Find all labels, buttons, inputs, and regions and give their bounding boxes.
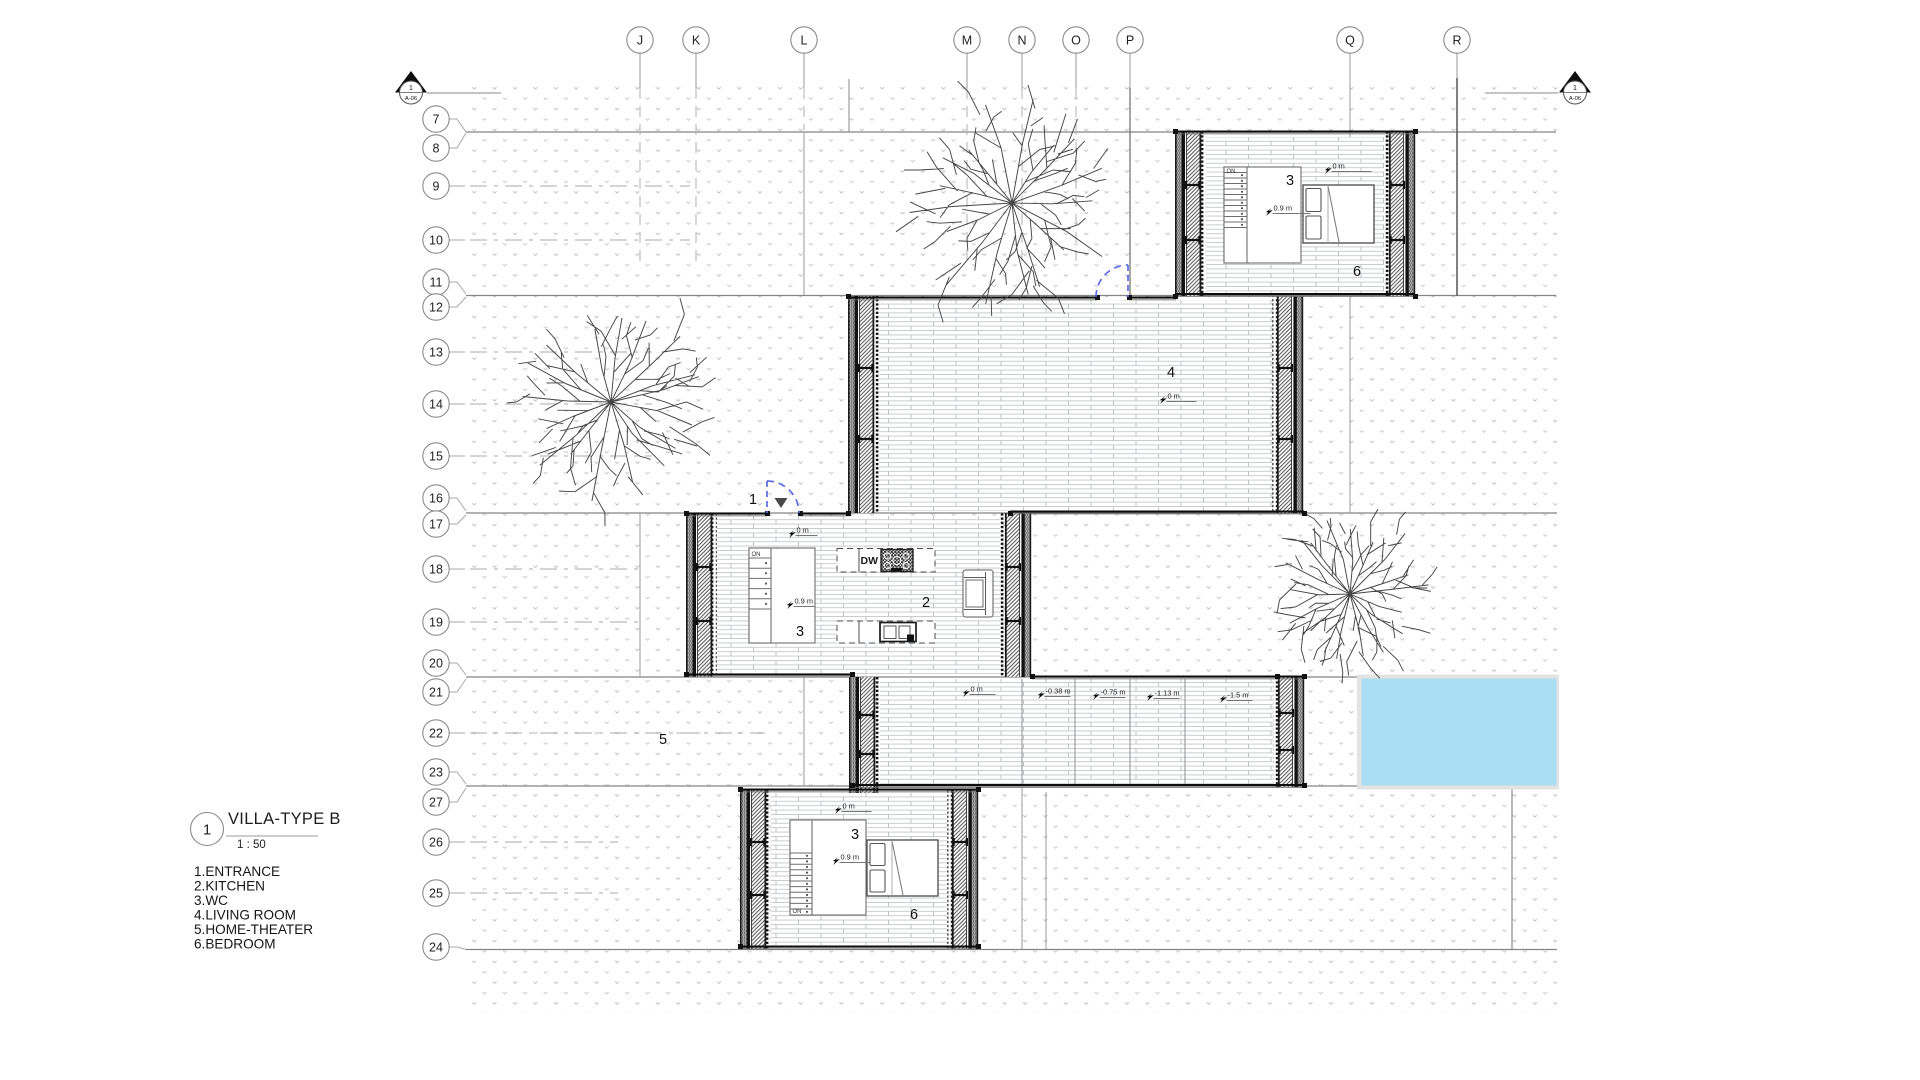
svg-text:5: 5: [659, 732, 667, 748]
svg-text:27: 27: [429, 795, 443, 809]
svg-text:22: 22: [429, 726, 443, 740]
svg-text:1.ENTRANCE: 1.ENTRANCE: [194, 864, 280, 879]
svg-text:24: 24: [429, 940, 443, 954]
svg-text:19: 19: [429, 615, 443, 629]
svg-text:0.9 m: 0.9 m: [841, 853, 859, 862]
svg-text:3: 3: [851, 827, 859, 843]
svg-text:20: 20: [429, 656, 443, 670]
svg-text:13: 13: [429, 345, 443, 359]
svg-text:5.HOME-THEATER: 5.HOME-THEATER: [194, 922, 313, 937]
svg-text:ON: ON: [793, 909, 802, 915]
svg-text:ON: ON: [752, 552, 761, 558]
svg-text:1: 1: [203, 822, 211, 839]
svg-text:25: 25: [429, 886, 443, 900]
svg-text:1: 1: [1573, 85, 1577, 92]
svg-text:2: 2: [922, 595, 930, 611]
svg-text:12: 12: [429, 300, 443, 314]
svg-text:4.LIVING ROOM: 4.LIVING ROOM: [194, 908, 296, 923]
svg-text:0 m: 0 m: [797, 526, 809, 535]
svg-text:Q: Q: [1345, 33, 1355, 47]
svg-text:L: L: [801, 33, 808, 47]
svg-text:15: 15: [429, 449, 443, 463]
svg-text:14: 14: [429, 397, 443, 411]
svg-text:J: J: [637, 33, 643, 47]
svg-text:3: 3: [1286, 173, 1294, 189]
svg-text:VILLA-TYPE B: VILLA-TYPE B: [228, 810, 341, 828]
svg-text:10: 10: [429, 233, 443, 247]
svg-text:7: 7: [433, 112, 440, 126]
svg-text:A-06: A-06: [405, 96, 417, 102]
svg-text:21: 21: [429, 685, 443, 699]
svg-text:A-06: A-06: [1569, 96, 1581, 102]
svg-text:0 m: 0 m: [1168, 392, 1180, 401]
svg-text:17: 17: [429, 517, 443, 531]
svg-text:R: R: [1452, 33, 1461, 47]
svg-text:ON: ON: [1227, 169, 1236, 175]
svg-text:3: 3: [796, 624, 804, 640]
svg-text:11: 11: [430, 275, 443, 289]
svg-text:6: 6: [910, 907, 918, 923]
svg-text:26: 26: [429, 835, 443, 849]
svg-text:4: 4: [1167, 365, 1175, 381]
svg-text:0.9 m: 0.9 m: [795, 597, 813, 606]
svg-text:16: 16: [429, 491, 443, 505]
svg-text:K: K: [692, 33, 701, 47]
svg-text:0.9 m: 0.9 m: [1274, 204, 1292, 213]
svg-text:1: 1: [409, 85, 413, 92]
svg-text:0 m: 0 m: [843, 802, 855, 811]
svg-text:O: O: [1071, 33, 1081, 47]
svg-text:2.KITCHEN: 2.KITCHEN: [194, 879, 265, 894]
svg-text:23: 23: [429, 765, 443, 779]
svg-text:6: 6: [1353, 264, 1361, 280]
svg-text:DW: DW: [861, 555, 879, 567]
svg-text:18: 18: [429, 562, 443, 576]
svg-text:8: 8: [433, 141, 440, 155]
svg-text:N: N: [1017, 33, 1026, 47]
svg-text:-0.38 m: -0.38 m: [1046, 687, 1071, 696]
svg-text:1 : 50: 1 : 50: [237, 839, 266, 851]
svg-text:3.WC: 3.WC: [194, 893, 228, 908]
svg-text:9: 9: [433, 179, 440, 193]
svg-text:M: M: [962, 33, 972, 47]
svg-text:-1.13 m: -1.13 m: [1155, 689, 1180, 698]
svg-text:-0.75 m: -0.75 m: [1101, 688, 1126, 697]
svg-text:6.BEDROOM: 6.BEDROOM: [194, 937, 276, 952]
svg-text:0 m: 0 m: [1333, 162, 1345, 171]
svg-text:0 m: 0 m: [971, 685, 983, 694]
svg-text:-1.5 m: -1.5 m: [1228, 691, 1249, 700]
svg-text:P: P: [1126, 33, 1134, 47]
svg-text:1: 1: [749, 492, 757, 508]
